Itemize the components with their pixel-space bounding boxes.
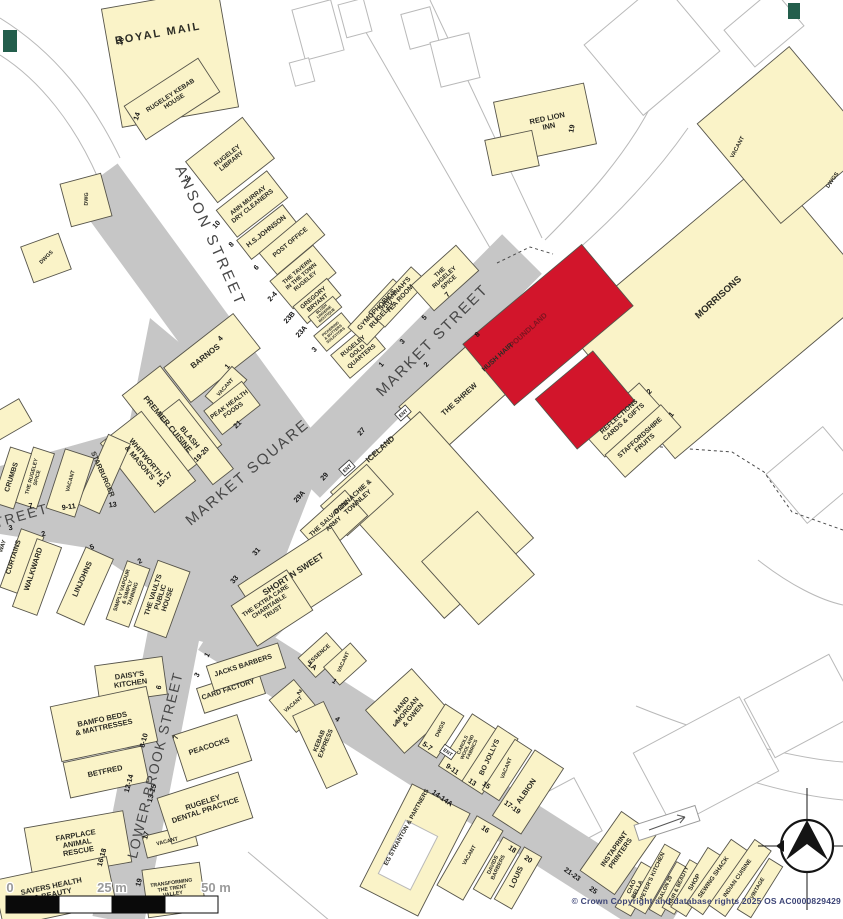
scale-label-50-m: 50 m (201, 880, 231, 895)
compass-rose (758, 788, 843, 910)
svg-text:WAY: WAY (0, 539, 8, 553)
street-number-6-258: 6 (251, 263, 260, 272)
background-path-8 (248, 852, 330, 919)
street-number-3-199: 3 (192, 671, 202, 679)
street-number-23a-303: 23A (293, 323, 309, 339)
bg-block-3 (289, 58, 315, 86)
svg-text:DWG: DWG (84, 192, 90, 205)
street-number-2-4-274: 2-4 (265, 289, 279, 303)
bg-block-2 (338, 0, 372, 38)
copyright-notice: © Crown Copyright and database rights 20… (572, 896, 841, 906)
street-number-23b-291: 23B (281, 309, 297, 325)
scale-label-25-m: 25 m (97, 880, 127, 895)
background-path-1 (0, 18, 120, 158)
building-left-block (0, 399, 32, 442)
building-linjohns (57, 547, 114, 625)
street-number-13-113: 13 (108, 500, 117, 510)
building-morrisons-ne-block (697, 47, 843, 224)
background-path-0 (0, 55, 98, 178)
street-number-3-316: 3 (309, 345, 318, 354)
scale-bar-segment-2 (112, 896, 165, 913)
scale-bar-segment-1 (59, 896, 112, 913)
bg-block-5 (430, 33, 480, 87)
unit-label-dwg: DWG (84, 192, 90, 205)
scale-bar-segment-0 (6, 896, 59, 913)
green-feature-2 (788, 3, 800, 19)
unit-label-way: WAY (0, 539, 8, 553)
bg-block-6 (584, 0, 720, 115)
background-path-9 (758, 560, 843, 605)
scale-bar-segment-3 (165, 896, 218, 913)
goad-retail-plan: ENTENTENTROYAL MAILRUGELEY KEBABHOUSERUG… (0, 0, 843, 919)
building-red-lion-annex (485, 130, 539, 175)
bg-block-1 (292, 0, 344, 60)
green-feature-1 (3, 30, 17, 52)
street-number-8-233: 8 (226, 240, 235, 249)
bg-block-8 (766, 427, 843, 524)
map-canvas: ENTENTENTROYAL MAILRUGELEY KEBABHOUSERUG… (0, 0, 843, 919)
scale-label-0: 0 (6, 880, 13, 895)
street-number-19-574: 19 (566, 124, 576, 133)
